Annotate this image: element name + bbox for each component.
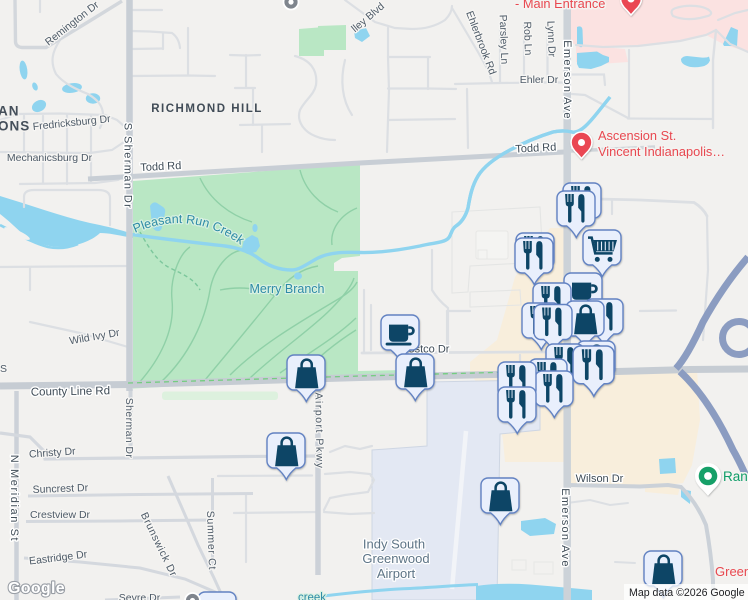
- svg-text:County Line Rd: County Line Rd: [31, 385, 110, 398]
- svg-text:Todd Rd: Todd Rd: [515, 141, 557, 155]
- svg-text:Google: Google: [8, 580, 65, 597]
- svg-text:Greenw: Greenw: [715, 564, 748, 579]
- svg-text:Ascension St.: Ascension St.: [598, 128, 676, 143]
- svg-text:Ehler Dr: Ehler Dr: [520, 74, 559, 86]
- svg-text:Emerson Ave: Emerson Ave: [559, 488, 571, 568]
- svg-text:Merry Branch: Merry Branch: [249, 282, 324, 296]
- svg-text:S Sherman Dr: S Sherman Dr: [122, 123, 134, 210]
- svg-text:Summer Ct: Summer Ct: [204, 511, 218, 571]
- svg-text:creek: creek: [298, 592, 326, 600]
- svg-text:AN: AN: [0, 104, 20, 119]
- svg-text:Airport Pkwy: Airport Pkwy: [312, 392, 325, 469]
- svg-text:Todd Rd: Todd Rd: [140, 160, 182, 174]
- svg-text:Mechanicsburg Dr: Mechanicsburg Dr: [7, 152, 93, 164]
- svg-text:ONS: ONS: [0, 119, 30, 134]
- svg-text:Sevre Dr: Sevre Dr: [119, 592, 161, 600]
- svg-text:Lynn Dr: Lynn Dr: [544, 21, 557, 58]
- svg-text:Suncrest Dr: Suncrest Dr: [32, 482, 88, 496]
- svg-text:Wilson Dr: Wilson Dr: [576, 473, 624, 485]
- svg-text:Ranch: Ranch: [723, 469, 748, 484]
- svg-text:Vincent Indianapolis…: Vincent Indianapolis…: [598, 144, 725, 159]
- svg-text:Airport: Airport: [377, 566, 416, 581]
- svg-text:Parsley Ln: Parsley Ln: [497, 14, 511, 64]
- svg-text:Map data ©2026 Google: Map data ©2026 Google: [629, 587, 745, 599]
- svg-text:Greenwood: Greenwood: [362, 551, 429, 566]
- svg-text:Dr S: Dr S: [0, 363, 7, 375]
- svg-text:Crestview Dr: Crestview Dr: [30, 509, 91, 521]
- svg-text:N Meridian St: N Meridian St: [8, 455, 20, 542]
- svg-text:Sherman Dr: Sherman Dr: [123, 398, 135, 459]
- svg-text:Indy South: Indy South: [363, 537, 425, 552]
- svg-text:RICHMOND HILL: RICHMOND HILL: [151, 103, 263, 115]
- svg-text:Rob Ln: Rob Ln: [521, 21, 534, 55]
- svg-text:Emerson Ave: Emerson Ave: [561, 40, 573, 120]
- svg-text:- Main Entrance: - Main Entrance: [515, 0, 605, 11]
